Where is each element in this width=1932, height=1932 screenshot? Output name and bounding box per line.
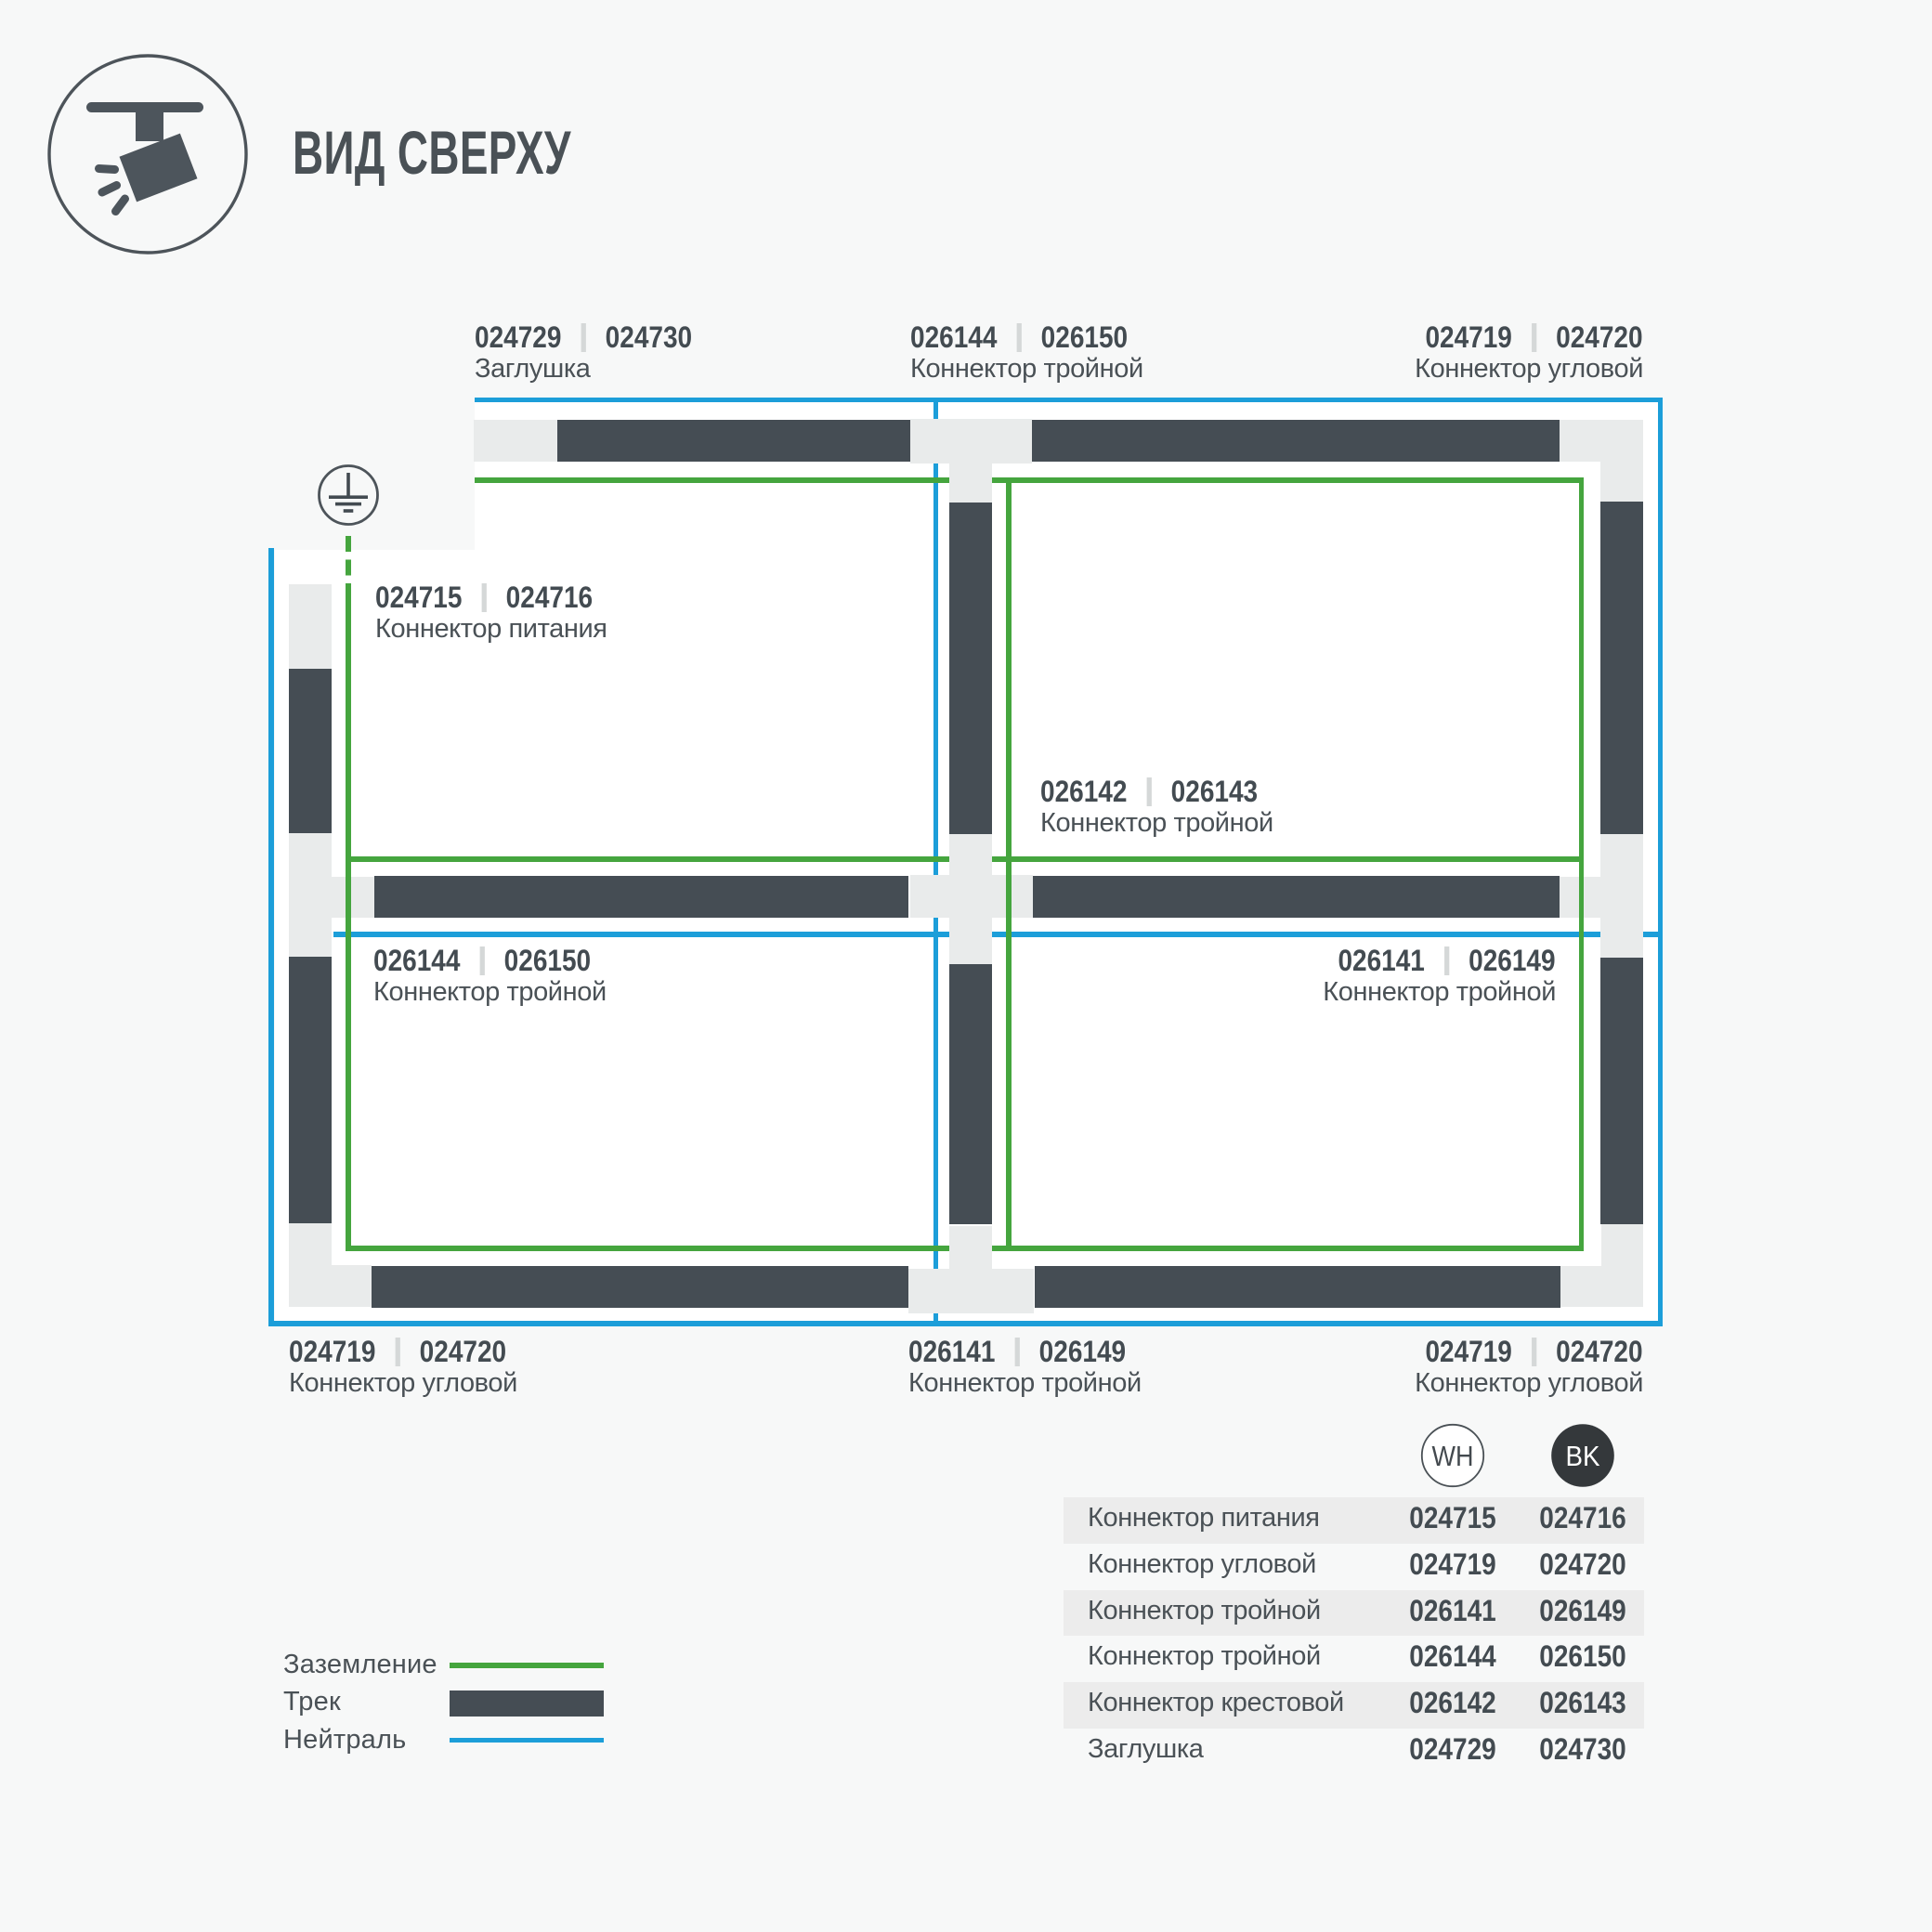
svg-text:WH: WH	[1432, 1440, 1474, 1472]
svg-text:BK: BK	[1566, 1440, 1600, 1472]
